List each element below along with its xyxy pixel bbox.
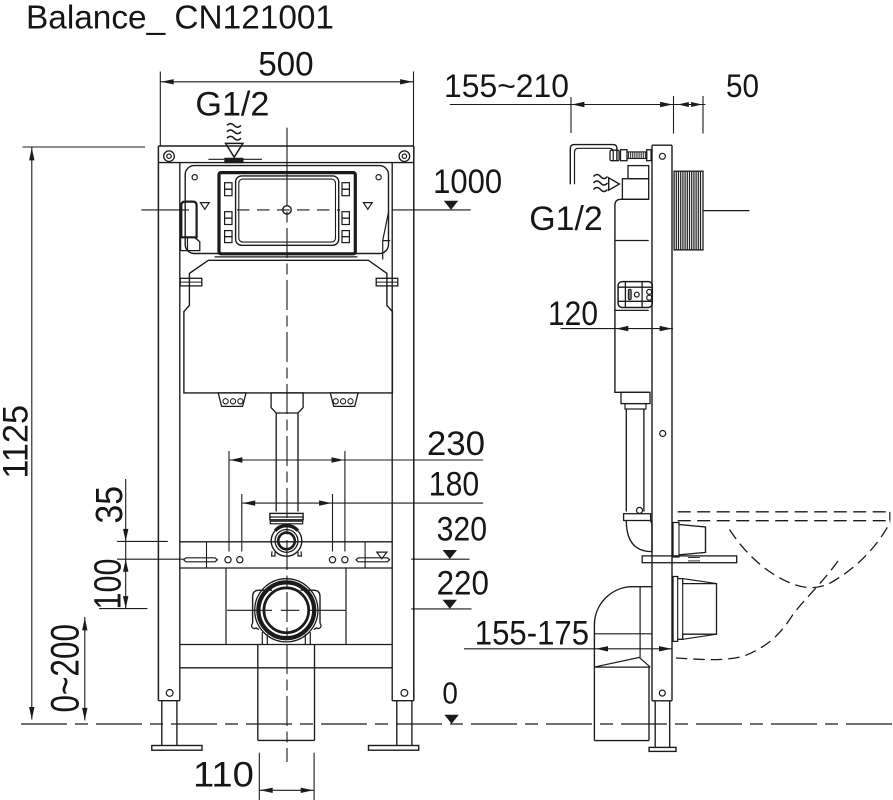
svg-text:180: 180 — [429, 466, 479, 504]
svg-text:50: 50 — [726, 68, 759, 104]
svg-text:320: 320 — [437, 510, 487, 548]
svg-text:155-175: 155-175 — [475, 614, 589, 652]
svg-text:G1/2: G1/2 — [195, 85, 269, 123]
svg-text:230: 230 — [427, 425, 485, 463]
svg-text:155~210: 155~210 — [444, 68, 569, 104]
svg-text:110: 110 — [193, 756, 254, 795]
svg-text:500: 500 — [258, 45, 314, 83]
svg-text:120: 120 — [548, 295, 598, 333]
svg-text:100: 100 — [87, 559, 129, 610]
svg-text:Balance_ CN121001: Balance_ CN121001 — [26, 0, 334, 35]
svg-text:220: 220 — [437, 565, 489, 603]
svg-text:35: 35 — [89, 486, 131, 524]
svg-text:1125: 1125 — [0, 405, 35, 479]
svg-text:G1/2: G1/2 — [529, 200, 603, 238]
svg-text:0~200: 0~200 — [43, 624, 87, 713]
svg-text:0: 0 — [442, 675, 458, 710]
svg-text:1000: 1000 — [433, 163, 502, 201]
